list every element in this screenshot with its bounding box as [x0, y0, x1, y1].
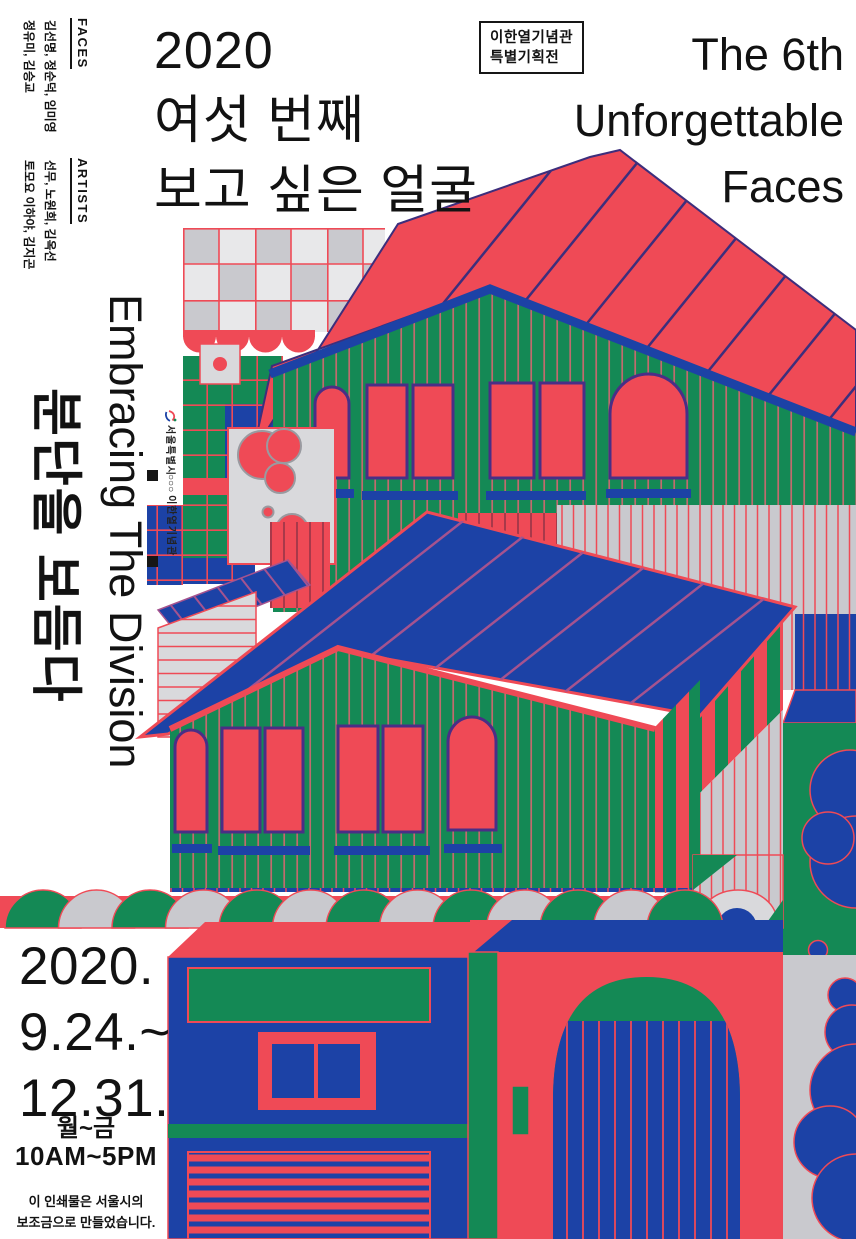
credits-faces-line1: 김선명, 정순덕, 임미영: [39, 20, 60, 133]
storefront: [168, 920, 783, 1239]
side-text-korean: 분단을 보듬다: [23, 388, 98, 704]
credits-artists-label: ARTISTS: [70, 158, 90, 224]
exhibition-poster: FACES 김선명, 정순덕, 임미영 정유미, 김승교 ARTISTS 선무,…: [0, 0, 856, 1239]
open-days: 월~금: [10, 1108, 162, 1143]
credits-artists-line1: 선무, 노원희, 김옥선: [39, 160, 60, 269]
credits-artists-line2: 토모요 이하야, 김지곤: [18, 160, 39, 269]
title-english-line2: Unforgettable: [420, 88, 844, 154]
memorial-logo-label: 이한열기념관: [165, 495, 176, 556]
funding-line1: 이 인쇄물은 서울시의: [2, 1191, 170, 1212]
title-english-line3: Faces: [420, 154, 844, 220]
seoul-logo-label: 서울특별시: [164, 425, 175, 476]
funding-line2: 보조금으로 만들었습니다.: [2, 1212, 170, 1233]
memorial-logo-mark: ○○○: [165, 474, 176, 492]
memorial-logo: ○○○이한열기념관: [165, 474, 180, 556]
side-text-english: Embracing The Division: [99, 294, 151, 768]
credits-faces-line2: 정유미, 김승교: [18, 20, 39, 133]
arch-gate: [553, 977, 740, 1239]
funding-note: 이 인쇄물은 서울시의 보조금으로 만들었습니다.: [2, 1191, 170, 1233]
right-column: [783, 723, 856, 1239]
open-hours: 10AM~5PM: [6, 1141, 166, 1172]
house-top-windows: [315, 374, 687, 478]
credits-artists-names: 선무, 노원희, 김옥선 토모요 이하야, 김지곤: [18, 160, 60, 269]
date-from: 9.24.~: [19, 1000, 171, 1066]
credits-faces-names: 김선명, 정순덕, 임미영 정유미, 김승교: [18, 20, 60, 133]
title-english: The 6th Unforgettable Faces: [420, 22, 844, 220]
title-english-line1: The 6th: [420, 22, 844, 88]
seoul-symbol-icon: [165, 410, 177, 422]
date-year: 2020.: [19, 934, 171, 1000]
exhibition-dates: 2020. 9.24.~ 12.31.: [19, 934, 171, 1132]
seoul-logo: 서울특별시: [164, 410, 179, 476]
credits-faces-label: FACES: [70, 18, 90, 69]
